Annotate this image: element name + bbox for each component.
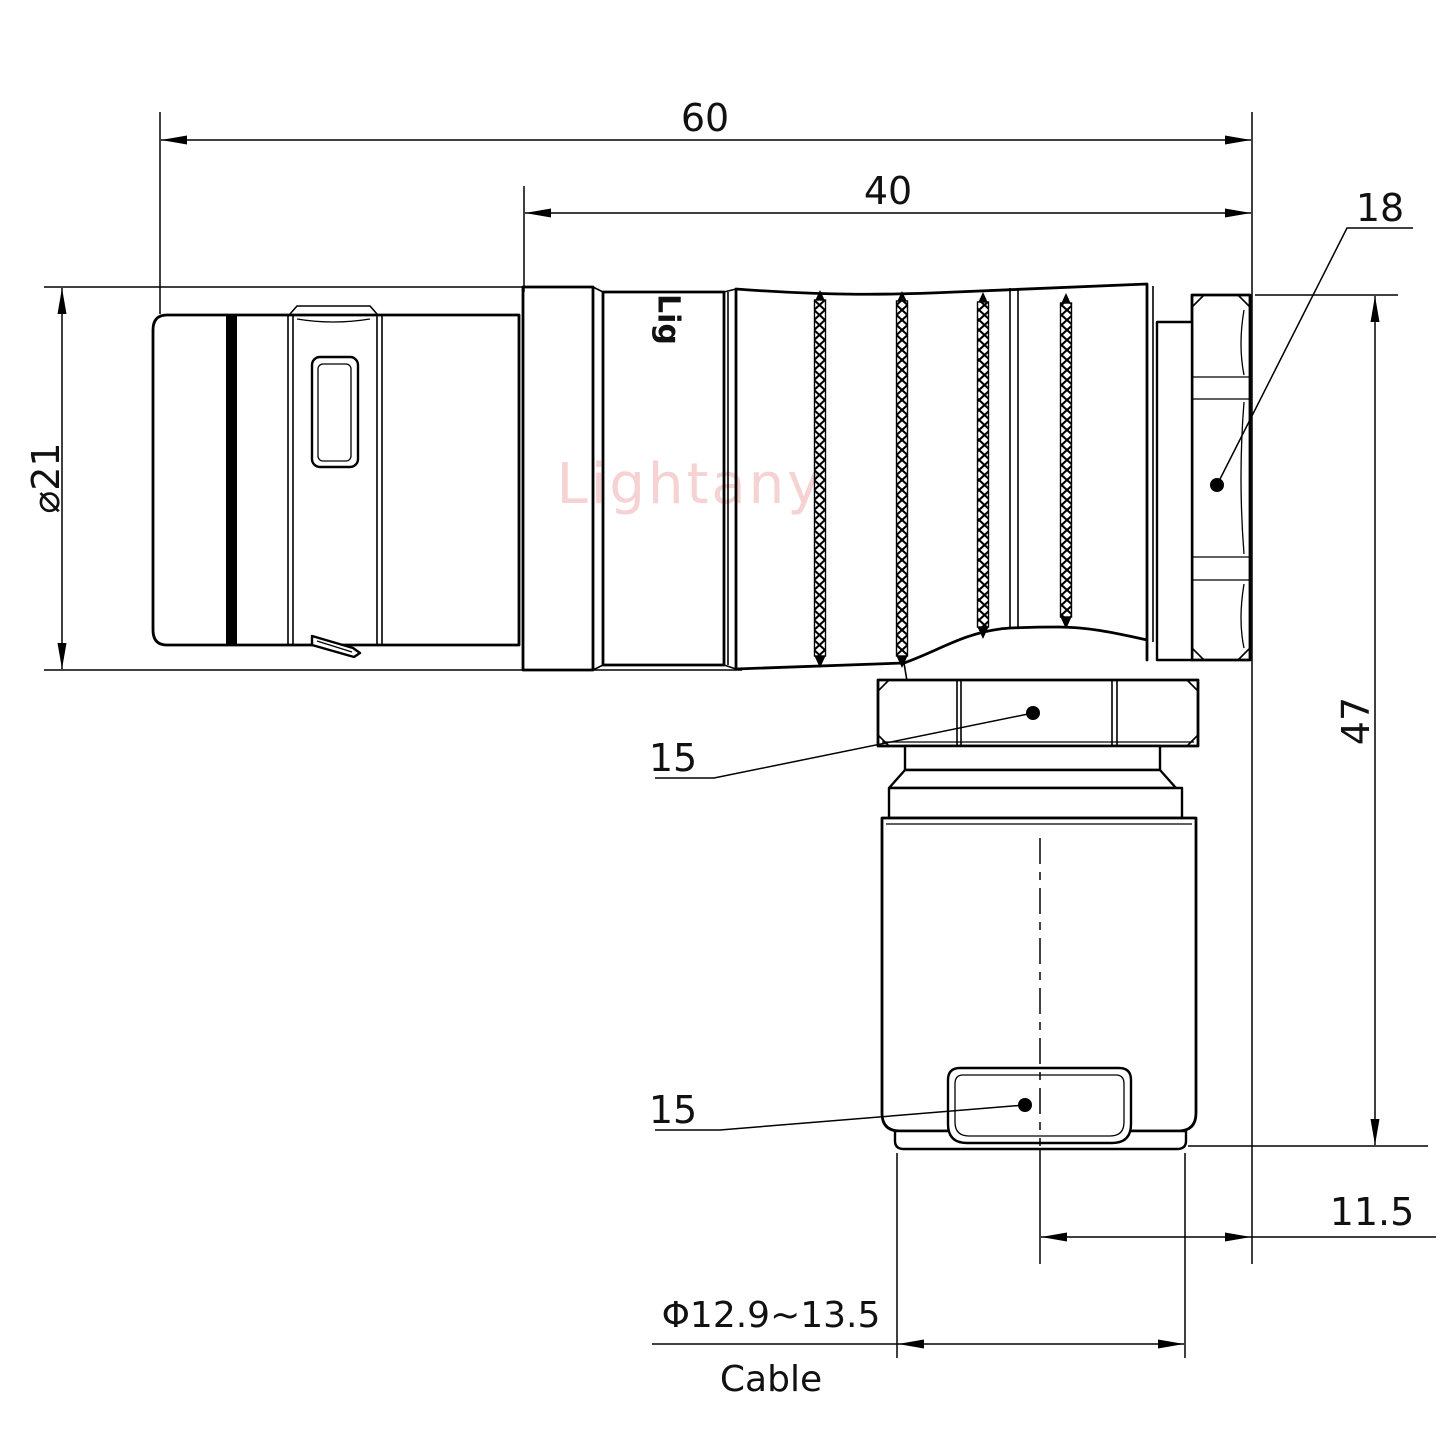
watermark: Lightany bbox=[557, 452, 824, 517]
knurl-band bbox=[978, 292, 989, 639]
dim-shell-diameter-label: ⌀21 bbox=[24, 442, 68, 513]
dim-overall-height-label: 47 bbox=[1334, 697, 1378, 745]
dim-axis-to-face-label: 11.5 bbox=[1330, 1190, 1415, 1234]
dim-overall-length-label: 60 bbox=[681, 96, 729, 140]
marker-band bbox=[226, 315, 237, 645]
part-marking-text: Lig bbox=[651, 294, 686, 345]
dim-cable-word-label: Cable bbox=[720, 1359, 822, 1400]
rear-coupling-shell bbox=[153, 306, 519, 657]
dim-gland-nut-label: 15 bbox=[649, 736, 697, 780]
dim-axis-to-face: 11.5 bbox=[1040, 1149, 1436, 1264]
neck-washer bbox=[905, 746, 1160, 770]
dim-cable-range-label: Φ12.9~13.5 bbox=[662, 1295, 881, 1336]
dim-coupling-nut-label: 18 bbox=[1356, 186, 1404, 230]
drawing-canvas: Lig Lightany 60 40 18 ⌀21 bbox=[0, 0, 1440, 1440]
dim-clamp-label: 15 bbox=[649, 1088, 697, 1132]
vertical-body bbox=[878, 680, 1198, 1149]
dim-front-length-label: 40 bbox=[864, 169, 912, 213]
dim-front-length: 40 bbox=[524, 169, 1251, 292]
neck-flange bbox=[889, 788, 1182, 818]
front-collar bbox=[1157, 322, 1192, 660]
knurl-band bbox=[897, 291, 908, 668]
knurl-band bbox=[1061, 293, 1072, 629]
neck-flare bbox=[889, 770, 1176, 788]
technical-drawing-connector-elbow: Lig Lightany 60 40 18 ⌀21 bbox=[0, 0, 1440, 1440]
dim-cable: Φ12.9~13.5 Cable bbox=[652, 1153, 1185, 1400]
